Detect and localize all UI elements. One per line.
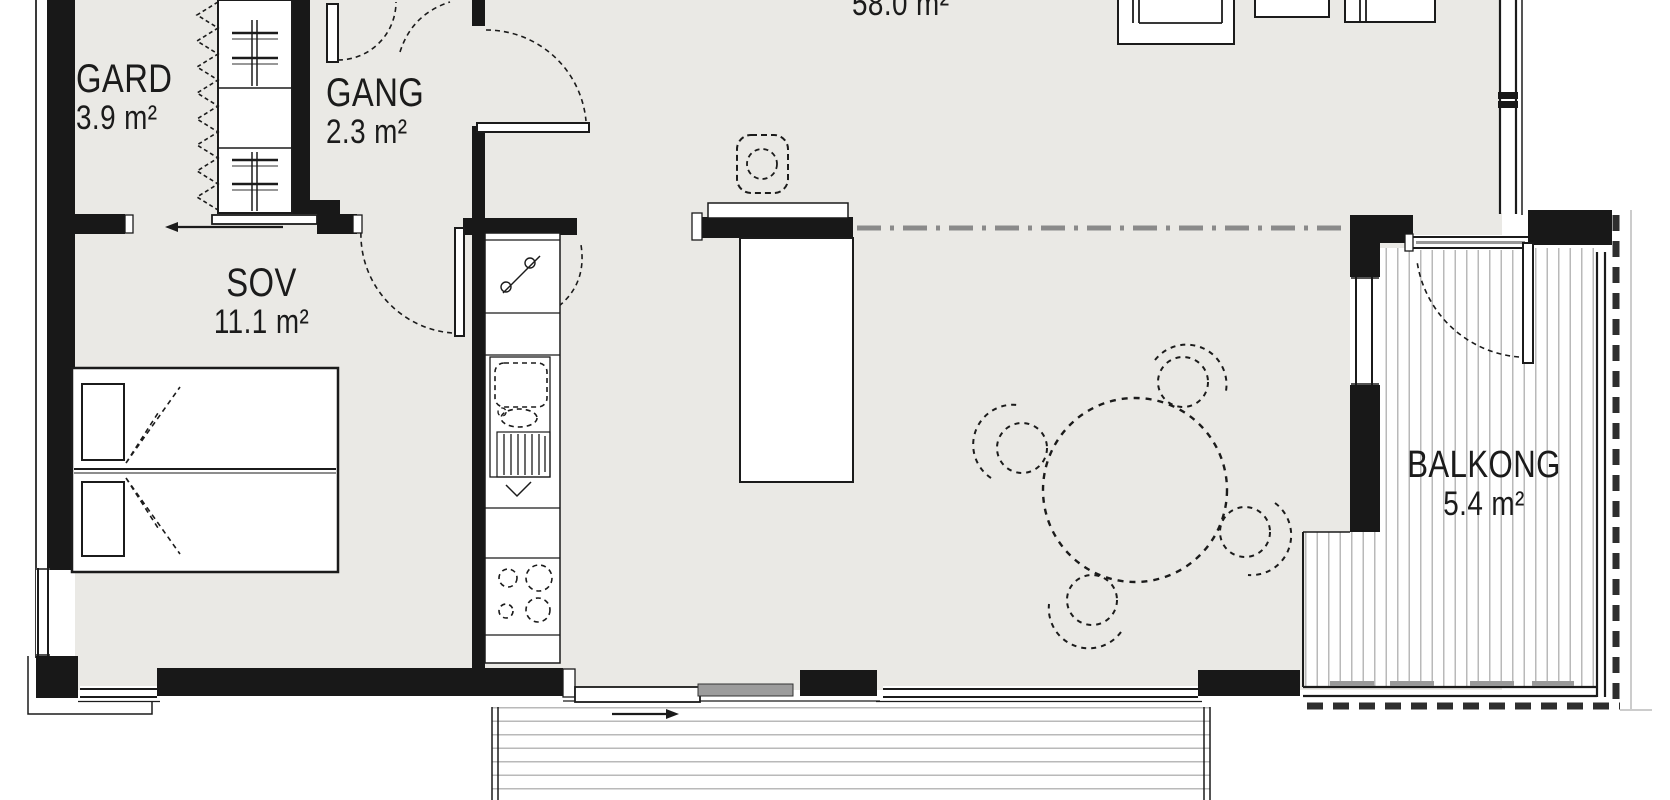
dining-chair [973,405,1047,478]
range-hood [737,135,788,193]
room-label-gang: GANG 2.3 m² [326,72,424,150]
wall-sov-stub-left [75,214,125,234]
wall-bottom-2 [800,670,877,696]
room-area: 11.1 m² [200,304,323,340]
room-name: BALKONG [1402,444,1566,486]
wall-bottom-1 [157,668,563,696]
island-countertop [708,203,848,218]
room-label-sov: SOV 11.1 m² [200,262,323,340]
sov-sliding-door [165,215,317,232]
hanging-clothes-symbol [197,2,218,210]
island-body [740,238,853,482]
plan-linework [0,0,1670,800]
wall-corner-bottom-left [36,656,78,698]
dining-set [973,345,1291,649]
window-bottom-sov [80,686,157,700]
dining-chair [1155,345,1227,407]
slide-arrow-right [666,709,679,719]
side-table [1255,0,1329,17]
room-area: 5.4 m² [1402,486,1566,522]
entrance-door [327,2,450,62]
room-area: 3.9 m² [76,100,172,136]
window-left-wall [36,568,50,656]
lounge-furniture [1118,0,1435,44]
bed [72,368,338,572]
wardrobe [197,0,292,213]
room-label-gard: GARD 3.9 m² [76,58,172,136]
wall-sov-stub-mid [317,214,357,234]
room-area: 58.0 m² [852,0,949,22]
room-name: GARD [76,58,172,100]
window-bottom-living [883,686,1198,700]
armchair [1118,0,1234,44]
armchair [1345,0,1435,22]
kitchen-island [708,135,853,482]
gang-living-door [477,30,589,132]
wall-wardrobe-right [292,0,310,214]
room-label-balkong: BALKONG 5.4 m² [1402,444,1566,522]
room-label-living-area: 58.0 m² [852,0,949,22]
wall-kitchen-left [472,236,485,668]
dining-chair [1049,575,1121,648]
slide-arrow-left [165,222,178,232]
room-area: 2.3 m² [326,114,424,150]
door-swing-arc [400,2,450,52]
door-swing-arc [338,2,396,60]
terrace-edges [492,707,1210,800]
door-swing-arc [1417,261,1519,357]
kitchen-counter [485,233,560,663]
balcony-door [1417,243,1533,363]
pillow [82,384,124,460]
floor-plan: GARD 3.9 m² GANG 2.3 m² SOV 11.1 m² 58.0… [0,0,1670,800]
wall-balcony-top-right [1528,210,1612,245]
wall-balcony-top-left [1350,215,1413,243]
window-balcony-left [1351,277,1379,385]
window-facade-right [1498,0,1523,215]
door-swing-arc [559,245,582,306]
balcony-door-threshold [1413,235,1528,250]
wall-island-stub [697,217,853,238]
room-name: GANG [326,72,424,114]
wall-balcony-left-upper [1350,243,1380,277]
room-name: SOV [200,262,323,304]
dining-chair [1220,503,1291,575]
dining-table [1043,398,1227,582]
wall-gang-stub [472,0,485,26]
door-swing-arc [486,30,586,121]
door-swing-arc [361,230,452,333]
pillow [82,482,124,556]
wall-balcony-left-lower [1350,385,1380,532]
exterior-trim [28,0,1202,714]
sov-door [361,228,464,336]
wall-bottom-3 [1198,670,1300,696]
